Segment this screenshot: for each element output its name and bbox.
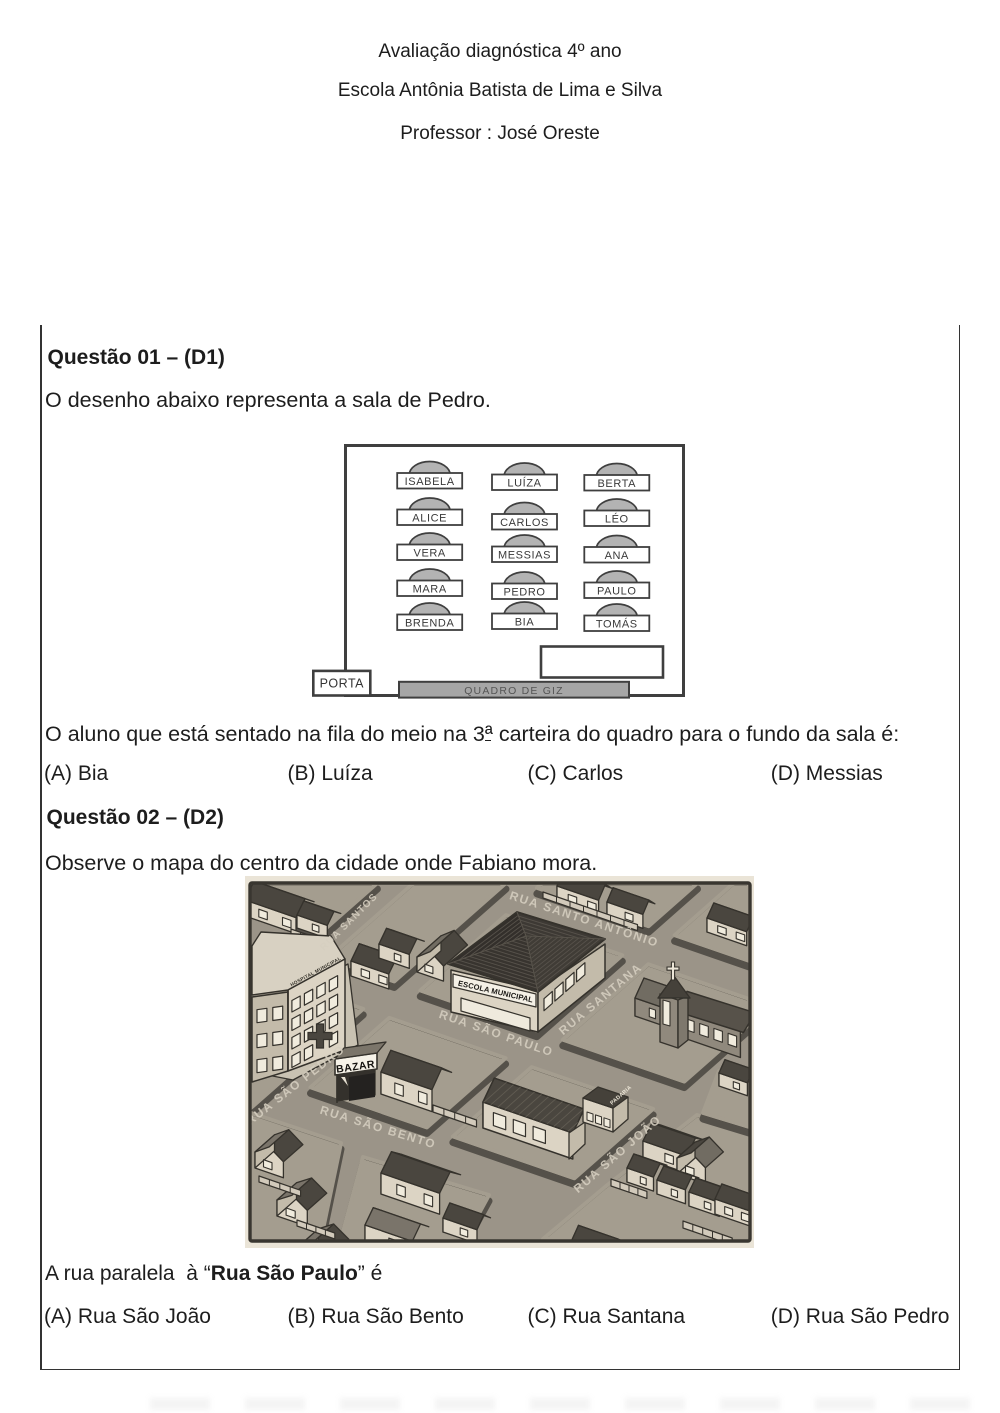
svg-text:PORTA: PORTA [320,677,365,691]
svg-text:PAULO: PAULO [597,586,636,598]
svg-text:VERA: VERA [414,548,446,560]
svg-text:LÉO: LÉO [605,513,629,526]
svg-text:ANA: ANA [605,550,629,562]
svg-text:PEDRO: PEDRO [503,587,545,599]
svg-text:CARLOS: CARLOS [500,517,549,529]
svg-text:MARA: MARA [413,584,447,596]
svg-text:ALICE: ALICE [412,513,447,525]
svg-text:MESSIAS: MESSIAS [498,550,551,562]
svg-text:LUÍZA: LUÍZA [507,477,541,490]
svg-text:QUADRO DE GIZ: QUADRO DE GIZ [464,685,564,697]
svg-text:TOMÁS: TOMÁS [596,618,638,631]
svg-text:BERTA: BERTA [597,478,636,490]
svg-text:BIA: BIA [515,617,535,629]
svg-text:ISABELA: ISABELA [405,476,455,488]
svg-text:BRENDA: BRENDA [405,618,455,630]
